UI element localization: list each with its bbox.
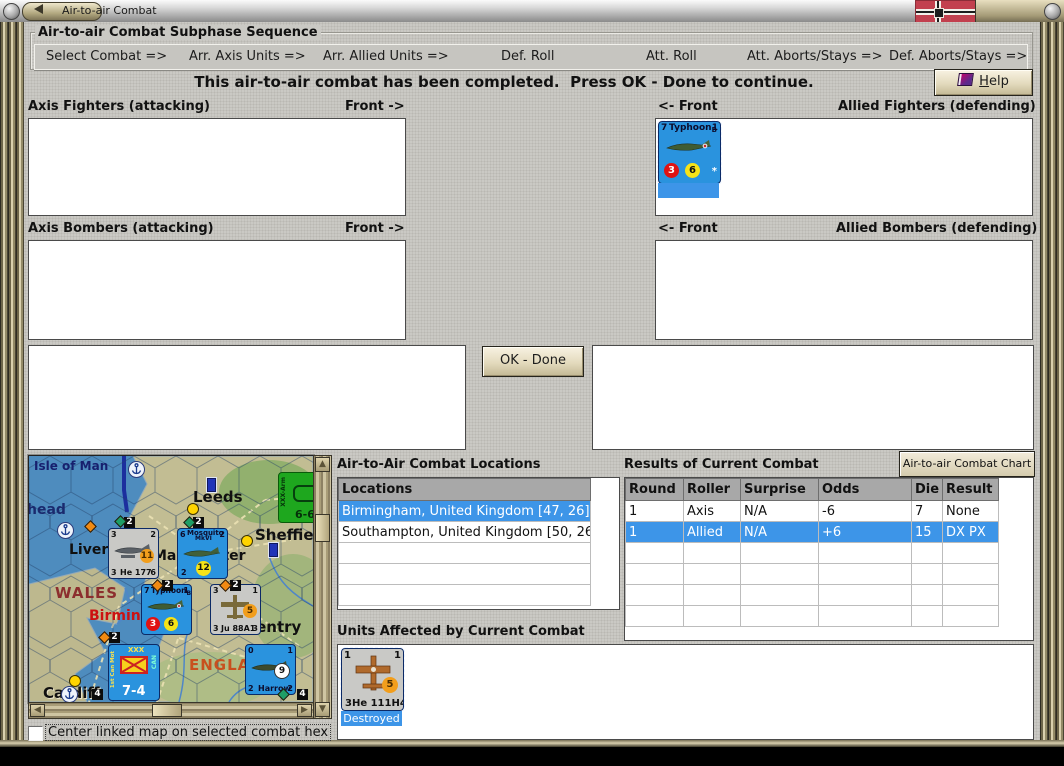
port-marker bbox=[268, 542, 279, 558]
allied-fighters-box[interactable]: 7 TyphoonB 1 3 6 * bbox=[655, 118, 1033, 216]
allied-bombers-front-label: <- Front bbox=[658, 221, 718, 236]
fighter-plane-icon bbox=[146, 598, 186, 614]
german-flag-icon bbox=[915, 0, 977, 24]
help-button[interactable]: Help bbox=[934, 69, 1033, 96]
allied-fighters-front-label: <- Front bbox=[658, 99, 718, 114]
center-map-checkbox-label[interactable]: Center linked map on selected combat hex bbox=[45, 724, 331, 741]
allied-bombers-label: Allied Bombers (defending) bbox=[836, 221, 1037, 236]
fighter-plane-icon bbox=[664, 138, 714, 156]
typhoon-selection-bar bbox=[658, 183, 719, 198]
frame-left bbox=[0, 22, 24, 740]
anchor-icon bbox=[61, 686, 78, 703]
location-row[interactable]: Birmingham, United Kingdom [47, 26] bbox=[339, 501, 591, 522]
left-info-box bbox=[28, 345, 466, 450]
map-label-sheffield: Sheffield bbox=[255, 526, 314, 544]
armor-symbol bbox=[293, 485, 314, 502]
step-def-aborts-stays: Def. Aborts/Stays => bbox=[889, 49, 1027, 64]
affected-title: Units Affected by Current Combat bbox=[337, 624, 585, 639]
col-surprise: Surprise bbox=[741, 479, 819, 501]
help-book-icon bbox=[957, 73, 974, 86]
result-row[interactable] bbox=[626, 564, 999, 585]
results-table-box[interactable]: Round Roller Surprise Odds Die Result 1A… bbox=[624, 477, 1034, 641]
scroll-thumb[interactable] bbox=[152, 704, 182, 717]
city-dot bbox=[187, 503, 199, 515]
subphase-strip: Select Combat => Arr. Axis Units => Arr.… bbox=[34, 44, 1028, 70]
scroll-up-button[interactable]: ▲ bbox=[315, 457, 330, 472]
right-info-box bbox=[592, 345, 1034, 450]
col-result: Result bbox=[943, 479, 999, 501]
map-vertical-scrollbar[interactable]: ▲ ▼ bbox=[313, 455, 332, 719]
axis-fighters-front-label: Front -> bbox=[345, 99, 405, 114]
step-arr-allied-units: Arr. Allied Units => bbox=[323, 49, 449, 64]
map-label-holyhead: head bbox=[28, 502, 66, 518]
col-odds: Odds bbox=[819, 479, 912, 501]
axis-fighters-box[interactable] bbox=[28, 118, 406, 216]
canadian-division-counter[interactable]: XXX 1st Can Mot CAN 7-4 bbox=[108, 644, 160, 701]
step-arr-axis-units: Arr. Axis Units => bbox=[189, 49, 306, 64]
anchor-icon bbox=[128, 461, 145, 478]
ju88-map-counter[interactable]: 3 1 5 3 Ju 88A1 3 bbox=[210, 584, 261, 635]
unit-status-label: Destroyed bbox=[341, 711, 402, 726]
map-label-isle-of-man: Isle of Man bbox=[34, 459, 108, 473]
result-row[interactable]: 1Axis N/A-6 7None bbox=[626, 501, 999, 522]
result-row[interactable] bbox=[626, 543, 999, 564]
combat-chart-button[interactable]: Air-to-air Combat Chart bbox=[899, 451, 1035, 477]
location-row[interactable]: Southampton, United Kingdom [50, 26] bbox=[339, 522, 591, 543]
allied-bombers-box[interactable] bbox=[655, 240, 1033, 340]
step-att-roll: Att. Roll bbox=[646, 49, 697, 64]
allied-fighters-label: Allied Fighters (defending) bbox=[838, 99, 1036, 114]
hex-badge: 4 bbox=[297, 689, 308, 700]
linked-map[interactable]: Isle of Man head Liverpool Manchester Le… bbox=[28, 455, 314, 703]
subphase-title: Air-to-air Combat Subphase Sequence bbox=[35, 25, 321, 40]
port-marker bbox=[206, 477, 217, 493]
anchor-icon bbox=[57, 522, 74, 539]
frame-bottom bbox=[0, 740, 1064, 747]
affected-units-box[interactable]: 1 1 5 3He 111H4 Destroyed bbox=[337, 644, 1034, 740]
title-bar[interactable]: Air-to-air Combat bbox=[0, 0, 1064, 23]
location-row[interactable] bbox=[339, 564, 591, 585]
map-horizontal-scrollbar[interactable]: ◀ ▶ bbox=[28, 702, 314, 719]
step-att-aborts-stays: Att. Aborts/Stays => bbox=[747, 49, 883, 64]
hex-badge: 4 bbox=[92, 689, 103, 700]
division-symbol bbox=[120, 656, 148, 674]
results-title: Results of Current Combat bbox=[624, 457, 819, 472]
scroll-left-button[interactable]: ◀ bbox=[30, 704, 45, 717]
col-round: Round bbox=[626, 479, 684, 501]
city-dot bbox=[241, 535, 253, 547]
map-label-leeds: Leeds bbox=[193, 488, 243, 506]
air-to-air-combat-window: Air-to-air Combat Air-to-air Combat Subp… bbox=[0, 0, 1064, 766]
he111-destroyed-counter[interactable]: 1 1 5 3He 111H4 bbox=[341, 648, 404, 711]
he177-map-counter[interactable]: 3 2 11 3 He 177 6 bbox=[108, 528, 159, 579]
step-def-roll: Def. Roll bbox=[501, 49, 555, 64]
locations-header: Locations bbox=[339, 479, 591, 501]
unit-name: TyphoonB bbox=[669, 123, 717, 134]
axis-bombers-label: Axis Bombers (attacking) bbox=[28, 221, 214, 236]
scroll-thumb[interactable] bbox=[315, 514, 330, 542]
mosquito-map-counter[interactable]: 6 Mosquito MkVI 2 2 12 bbox=[177, 528, 228, 579]
location-row[interactable] bbox=[339, 543, 591, 564]
location-row[interactable] bbox=[339, 585, 591, 606]
harrow-map-counter[interactable]: 0 1 9 2 Harrow 2 bbox=[245, 644, 296, 695]
status-message: This air-to-air combat has been complete… bbox=[174, 73, 834, 91]
scroll-down-button[interactable]: ▼ bbox=[315, 702, 330, 717]
frame-right bbox=[1040, 22, 1064, 740]
result-row[interactable] bbox=[626, 606, 999, 627]
col-roller: Roller bbox=[684, 479, 741, 501]
screw-icon bbox=[1044, 3, 1061, 20]
system-menu-arrow-icon bbox=[34, 4, 43, 14]
axis-fighters-label: Axis Fighters (attacking) bbox=[28, 99, 210, 114]
locations-title: Air-to-Air Combat Locations bbox=[337, 457, 540, 472]
armor-map-counter[interactable]: XXX XXX-Arm 6-6 bbox=[278, 472, 314, 523]
ok-done-button[interactable]: OK - Done bbox=[482, 346, 584, 377]
map-label-wales: WALES bbox=[55, 584, 118, 602]
step-select-combat: Select Combat => bbox=[46, 49, 167, 64]
window-title: Air-to-air Combat bbox=[62, 4, 157, 17]
dialog-content: Air-to-air Combat Subphase Sequence Sele… bbox=[24, 22, 1040, 740]
locations-listbox[interactable]: Locations Birmingham, United Kingdom [47… bbox=[337, 477, 620, 610]
result-row[interactable] bbox=[626, 585, 999, 606]
typhoon-map-counter[interactable]: 7 TyphoonB 1 3 6 bbox=[141, 584, 192, 635]
axis-bombers-box[interactable] bbox=[28, 240, 406, 340]
screw-icon bbox=[3, 3, 20, 20]
center-map-checkbox[interactable] bbox=[28, 726, 43, 741]
fighter-plane-icon bbox=[182, 545, 222, 561]
col-die: Die bbox=[912, 479, 943, 501]
result-row[interactable]: 1Allied N/A+6 15DX PX bbox=[626, 522, 999, 543]
axis-bombers-front-label: Front -> bbox=[345, 221, 405, 236]
scroll-right-button[interactable]: ▶ bbox=[297, 704, 312, 717]
typhoon-unit-counter[interactable]: 7 TyphoonB 1 3 6 * bbox=[658, 121, 721, 184]
